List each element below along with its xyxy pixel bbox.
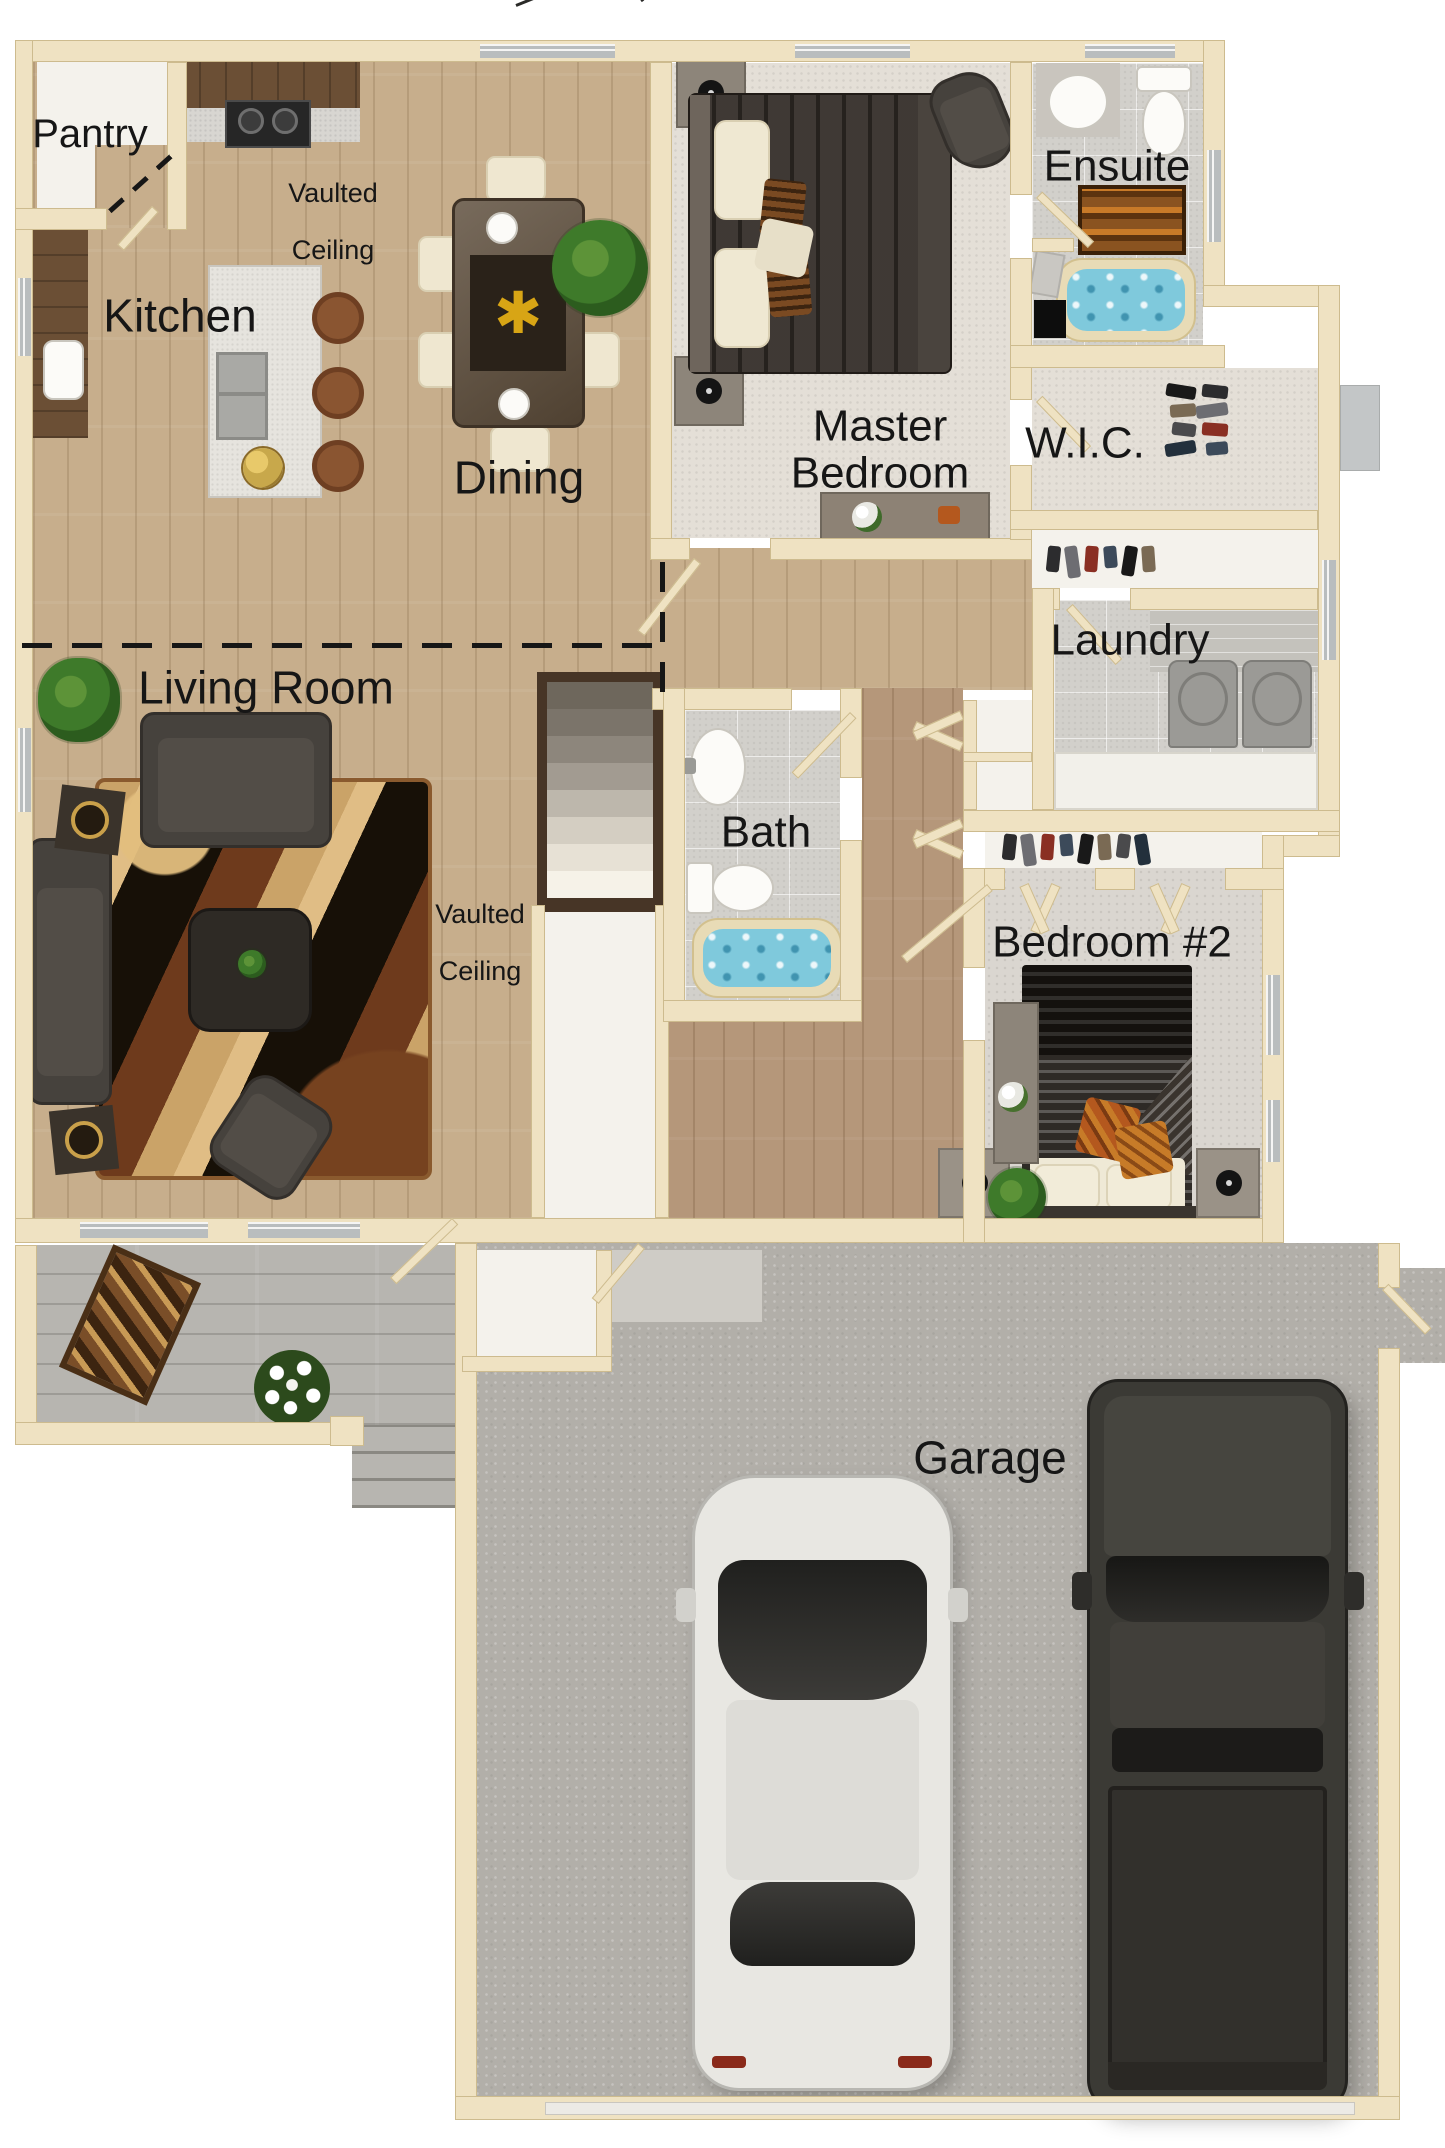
window-bedroom2-2 — [1266, 1100, 1280, 1162]
wall-bed2-top-b — [1095, 868, 1135, 890]
wall-garage-right-top — [1378, 1243, 1400, 1288]
roof-ridge-marker — [515, 0, 637, 7]
label-bedroom2: Bedroom #2 — [992, 920, 1232, 967]
fruit-bowl — [243, 448, 283, 488]
master-dresser — [820, 492, 990, 544]
vaulted-line1: Vaulted — [288, 177, 378, 207]
garage-entry-nook — [462, 1250, 602, 1368]
label-ensuite: Ensuite — [1044, 144, 1191, 191]
window-south-living-2 — [248, 1222, 360, 1238]
car-white-windshield — [718, 1560, 927, 1700]
label-wic: W.I.C. — [1025, 421, 1145, 468]
car-white-taillight-left — [712, 2056, 746, 2068]
stairwell-wall-left — [531, 905, 545, 1218]
sofa-loveseat — [140, 712, 332, 848]
sofa-left — [28, 838, 112, 1105]
window-left-living — [18, 728, 31, 812]
wall-top — [15, 40, 1225, 62]
bath-toilet-tank — [686, 862, 714, 914]
left-counter-appliance — [43, 340, 84, 400]
wall-pantry-right — [167, 62, 187, 230]
roof-ridge-tick — [634, 0, 644, 2]
deck-rim-left — [15, 1245, 37, 1445]
wall-laundry-top — [1130, 588, 1318, 610]
wall-bath-right-low — [840, 840, 862, 1022]
master-line1: Master — [813, 401, 947, 450]
bar-stool-3 — [312, 440, 364, 492]
window-right-laundry — [1322, 560, 1336, 660]
deck-steps — [352, 1425, 455, 1508]
stairs — [537, 672, 663, 912]
floor-plan: ✱ — [0, 0, 1445, 2148]
wall-garage-nook-right — [596, 1250, 612, 1368]
ensuite-bathtub-water — [1067, 269, 1185, 331]
bifold-corridor-1 — [916, 712, 962, 752]
window-right-ensuite — [1207, 150, 1221, 242]
stove-burner-right — [272, 108, 298, 134]
dryer-lid — [1252, 672, 1302, 726]
ensuite-bathtub — [1056, 258, 1196, 342]
truck-bed — [1108, 1786, 1327, 2086]
car-white-taillight-right — [898, 2056, 932, 2068]
master-dresser-flowers — [852, 502, 882, 532]
wall-master-south-left — [650, 538, 690, 560]
side-table-top-tray — [71, 801, 109, 839]
wall-bed2-top-c — [1225, 868, 1284, 890]
truck-rear-window — [1112, 1728, 1323, 1772]
label-pantry: Pantry — [32, 113, 148, 155]
wall-master-right-mid — [1010, 258, 1032, 400]
label-garage: Garage — [913, 1434, 1066, 1483]
bifold-corridor-2 — [916, 820, 962, 860]
wall-garage-left — [455, 1243, 477, 2120]
fern-plant-living — [38, 658, 120, 742]
deck-flower-pot — [254, 1350, 330, 1426]
label-master-bedroom: Master Bedroom — [791, 403, 970, 496]
label-dining: Dining — [454, 454, 584, 503]
car-white-mirror-left — [676, 1588, 696, 1622]
floor-under-bath-hall — [663, 1012, 862, 1220]
bed2-lamp-right — [1216, 1170, 1242, 1196]
vaulted2-line1: Vaulted — [435, 898, 525, 928]
deck-post — [330, 1416, 364, 1446]
wall-bath-bottom — [663, 1000, 862, 1022]
ensuite-sink — [1048, 74, 1108, 130]
wic-hanging-clothes — [1165, 382, 1228, 466]
bay-window-exterior — [1340, 385, 1380, 471]
truck-mirror-left — [1072, 1572, 1092, 1610]
coffee-table-plant — [238, 950, 266, 978]
window-master-top — [795, 44, 910, 58]
kitchen-counter-left — [33, 230, 88, 438]
wall-pantry-bottom — [15, 208, 107, 230]
truck-windshield — [1106, 1556, 1329, 1622]
wall-corridor-closet-div — [963, 752, 1032, 762]
label-living-room: Living Room — [138, 664, 394, 713]
label-vaulted-kitchen: Vaulted Ceiling — [288, 150, 378, 264]
bath-bathtub — [692, 918, 842, 998]
truck-cab-roof — [1110, 1622, 1325, 1728]
wall-master-south-right — [770, 538, 1032, 560]
master-dresser-decor — [938, 506, 960, 524]
window-ensuite-top — [1085, 44, 1175, 58]
side-table-bottom-tray — [65, 1121, 103, 1159]
label-laundry: Laundry — [1050, 618, 1209, 665]
master-lamp-bottom — [696, 378, 722, 404]
truck-tailgate — [1108, 2062, 1327, 2090]
window-bedroom2-1 — [1266, 975, 1280, 1055]
vaulted-line2: Ceiling — [292, 235, 375, 265]
bedroom2-closet-clothes — [1000, 834, 1240, 866]
wall-bath-right-top — [840, 688, 862, 778]
truck-mirror-right — [1344, 1572, 1364, 1610]
wall-garage-right — [1378, 1348, 1400, 2120]
car-white-mirror-right — [948, 1588, 968, 1622]
island-sink-divider — [216, 392, 268, 396]
wall-bath-left — [663, 688, 685, 1022]
stove-burner-left — [238, 108, 264, 134]
vaulted2-line2: Ceiling — [439, 956, 522, 986]
car-white-rear-window — [730, 1882, 915, 1966]
truck-hood — [1104, 1396, 1331, 1556]
wall-ensuite-wic-divider — [1010, 345, 1225, 368]
bed2-dresser-flowers — [998, 1082, 1028, 1112]
laundry-counter — [1054, 752, 1318, 810]
car-white-roof — [726, 1700, 919, 1880]
garage-door-band — [545, 2102, 1355, 2115]
dining-plate-top — [486, 212, 518, 244]
bath-toilet-bowl — [712, 864, 774, 912]
bar-stool-1 — [312, 292, 364, 344]
dining-centerpiece-flower: ✱ — [488, 283, 548, 343]
island-sink — [216, 352, 268, 440]
master-center-pillow — [753, 217, 815, 279]
ensuite-rug — [1078, 185, 1186, 255]
floor-stairwell — [545, 905, 655, 1218]
wall-master-right-top — [1010, 62, 1032, 195]
wall-ensuite-stub — [1032, 238, 1074, 252]
wall-garage-nook-bottom — [462, 1356, 612, 1372]
window-left-kitchen — [18, 278, 31, 356]
bath-sink — [690, 728, 746, 806]
deck-rim-bottom — [15, 1422, 355, 1445]
wall-master-left — [650, 62, 672, 560]
dining-chair-top — [486, 156, 546, 202]
bed2-headblock — [1022, 965, 1192, 1060]
window-kitchen-top — [480, 44, 615, 58]
vault-boundary-horizontal — [22, 643, 663, 648]
dining-plate-bottom — [498, 388, 530, 420]
label-vaulted-living: Vaulted Ceiling — [435, 871, 525, 985]
master-line2: Bedroom — [791, 448, 970, 497]
vault-boundary-vertical — [660, 560, 665, 692]
master-bed-headboard — [690, 95, 710, 372]
label-kitchen: Kitchen — [103, 292, 256, 341]
window-south-living-1 — [80, 1222, 208, 1238]
hall-closet-shoes — [1044, 546, 1194, 578]
bath-bathtub-water — [703, 929, 831, 987]
wall-bed2-left-low — [963, 1040, 985, 1243]
bed2-accent-pillow-2 — [1114, 1120, 1174, 1180]
ensuite-toilet-tank — [1136, 66, 1192, 92]
washer-lid — [1178, 672, 1228, 726]
ensuite-black-mat — [1034, 300, 1066, 338]
floor-foyer — [650, 548, 1032, 690]
bar-stool-2 — [312, 367, 364, 419]
wall-wic-bottom — [1010, 510, 1318, 530]
wall-laundry-bottom — [963, 810, 1340, 832]
label-bath: Bath — [721, 810, 812, 857]
wall-bed2-left — [963, 868, 985, 968]
dining-tree-plant — [552, 220, 648, 316]
